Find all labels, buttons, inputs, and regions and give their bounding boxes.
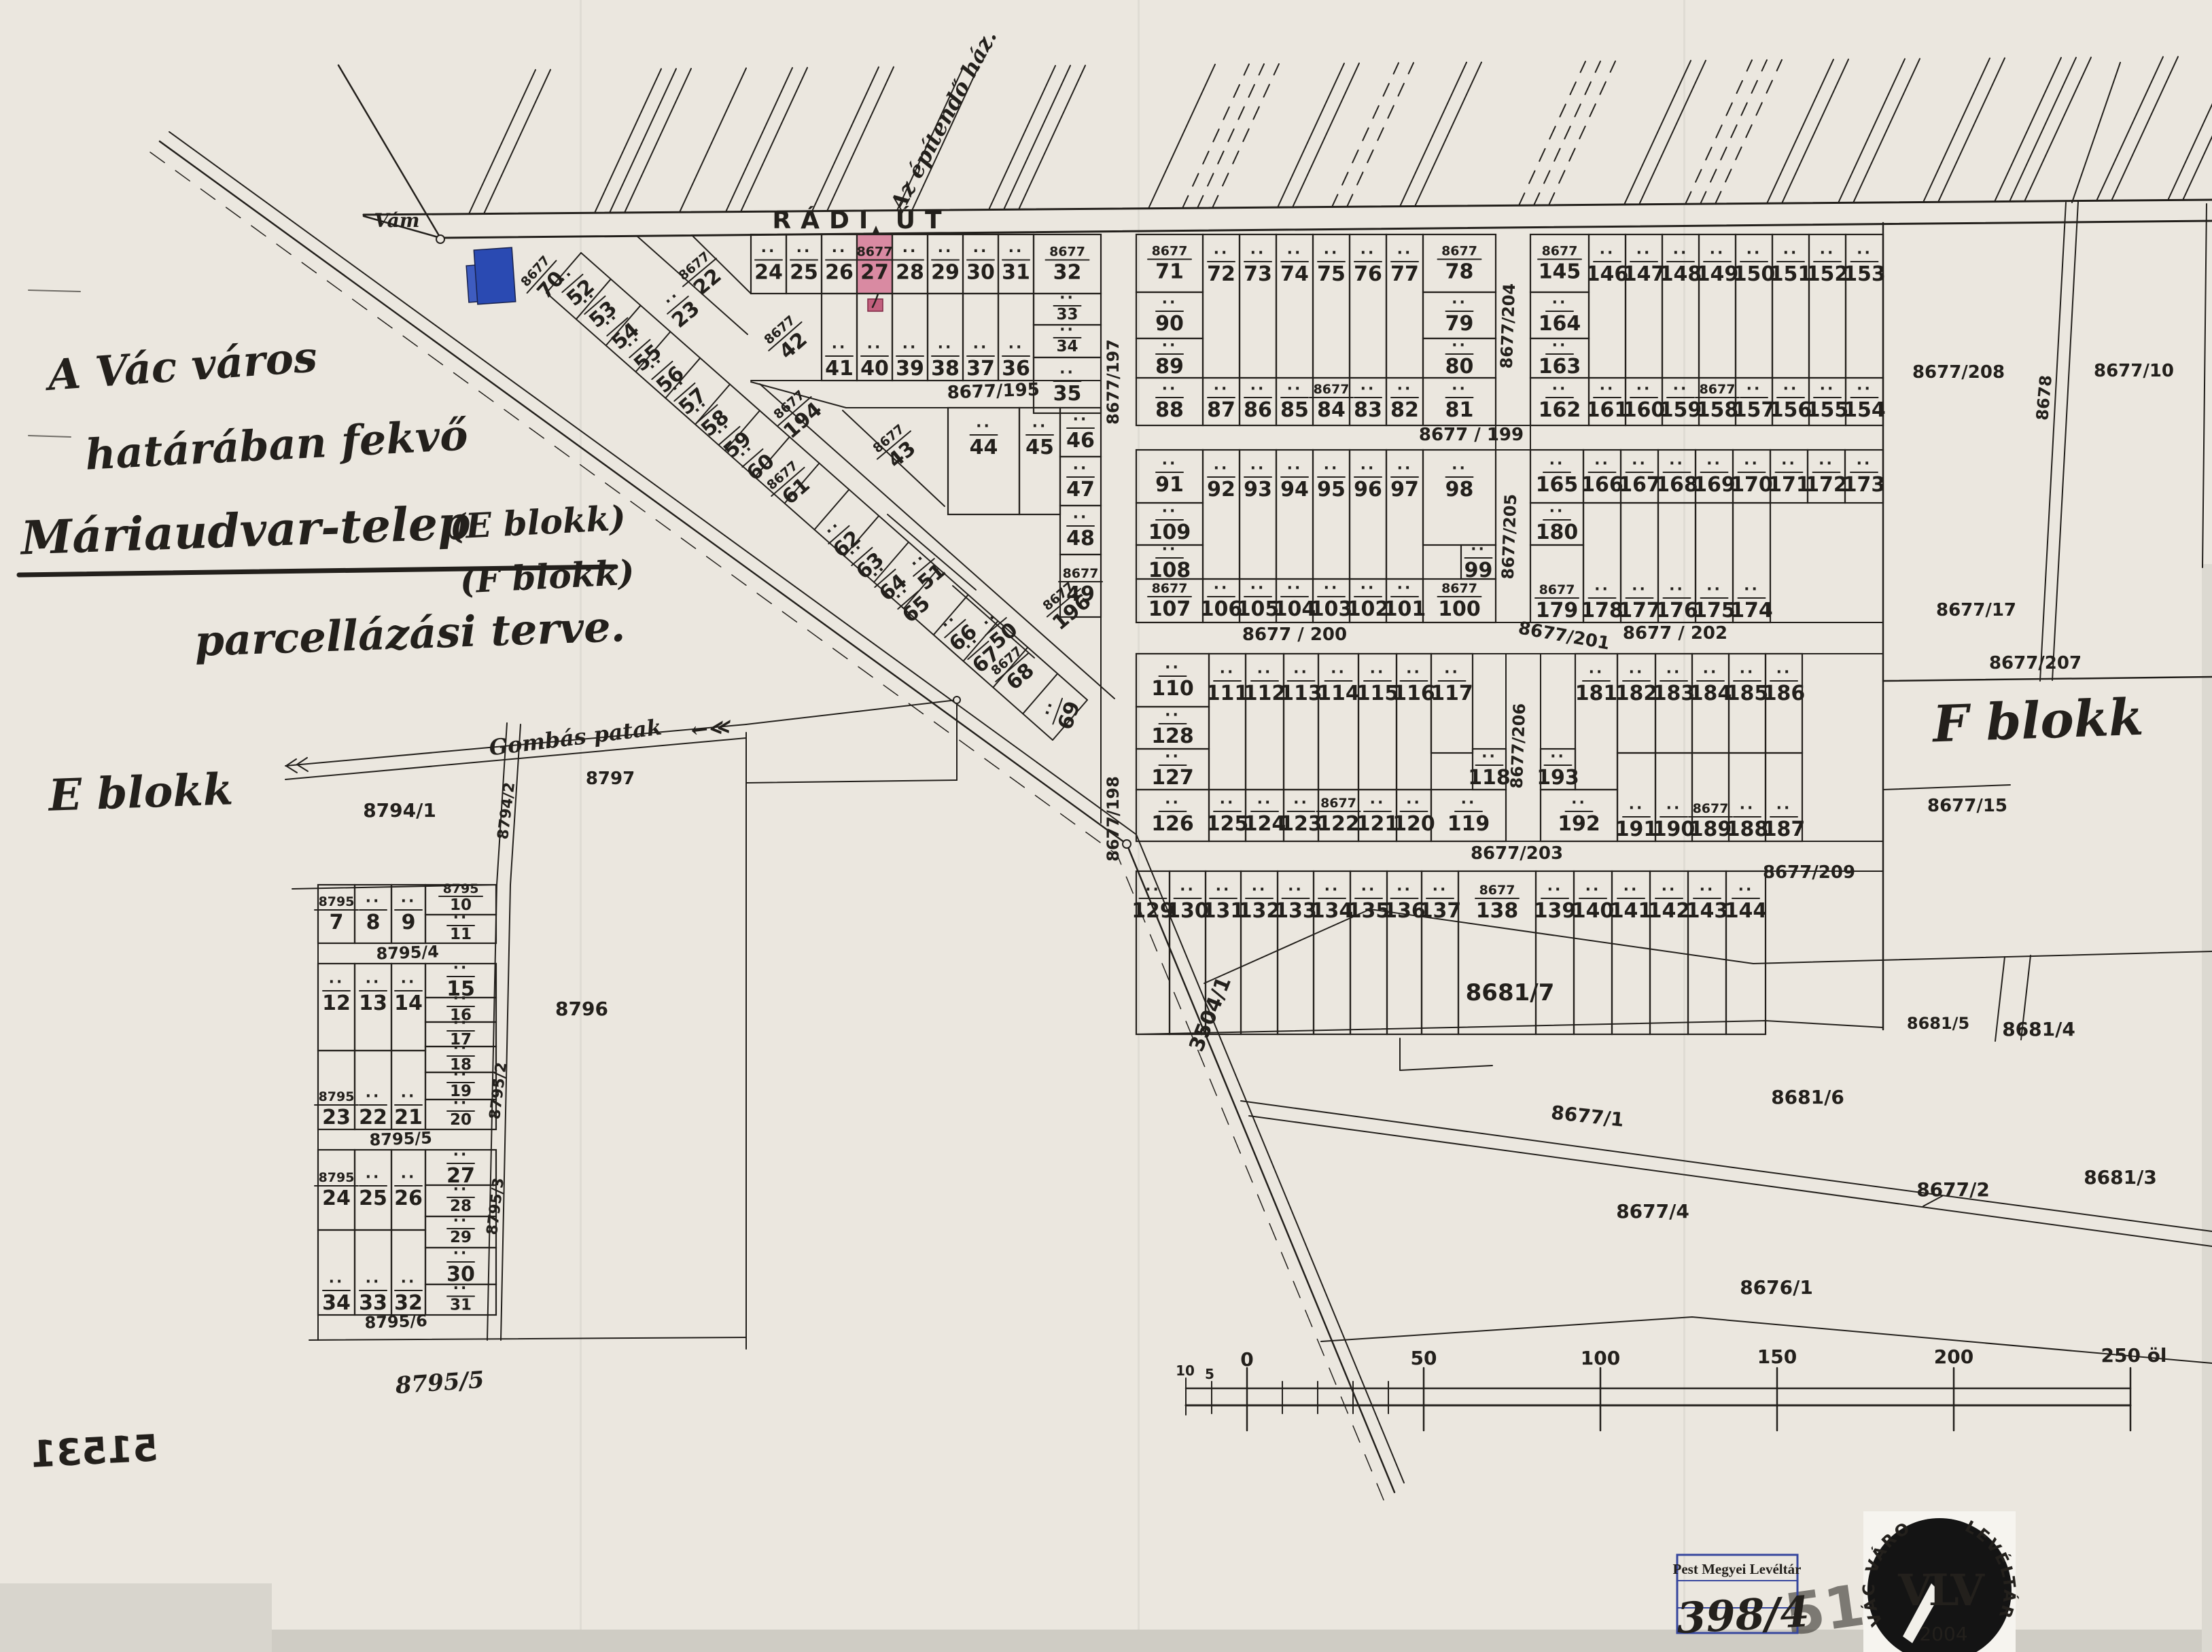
parcel-number: 174 — [1730, 599, 1773, 622]
parcel-prefix: ·· — [1740, 800, 1755, 817]
parcel-8677-2: 8677/2 — [1916, 1178, 1990, 1201]
parcel-prefix: ·· — [1360, 381, 1376, 398]
parcel-number: 164 — [1539, 312, 1581, 336]
parcel-number: 144 — [1725, 899, 1768, 923]
parcel-number: 187 — [1763, 818, 1806, 841]
parcel-prefix: ·· — [1632, 581, 1647, 598]
parcel-number: 193 — [1537, 766, 1579, 790]
parcel-prefix: ·· — [1746, 245, 1762, 262]
parcel-number: 72 — [1207, 262, 1235, 286]
parcel-prefix: ·· — [1452, 337, 1467, 354]
parcel-number: 86 — [1244, 398, 1272, 422]
parcel-number: 162 — [1539, 398, 1581, 422]
parcel-prefix: ·· — [1293, 794, 1309, 811]
logo-year: 2004 — [1919, 1623, 1967, 1645]
parcel-prefix: ·· — [1032, 418, 1048, 435]
parcel-number: 81 — [1445, 398, 1474, 422]
parcel-number: 37 — [966, 357, 995, 381]
parcel-number: 145 — [1539, 260, 1581, 284]
parcel-8677-4: 8677/4 — [1616, 1200, 1689, 1223]
parcel-prefix: ·· — [1397, 245, 1413, 262]
parcel-prefix: ·· — [1406, 664, 1422, 681]
parcel-prefix: ·· — [1257, 664, 1273, 681]
parcel-number: 36 — [1002, 357, 1030, 381]
scale-tick-5: 5 — [1205, 1366, 1214, 1382]
parcel-8681-6: 8681/6 — [1771, 1086, 1844, 1108]
parcel-prefix: ·· — [401, 1273, 417, 1290]
parcel-prefix: ·· — [1820, 245, 1836, 262]
parcel-prefix: ·· — [366, 1169, 381, 1186]
scale-tick-10: 10 — [1176, 1363, 1195, 1379]
parcel-prefix: ·· — [1220, 664, 1235, 681]
parcel-prefix: ·· — [1550, 748, 1566, 765]
parcel-prefix: ·· — [1669, 581, 1685, 598]
parcel-number: 26 — [394, 1187, 423, 1210]
parcel-number: 30 — [966, 261, 995, 285]
parcel-number: 79 — [1445, 312, 1474, 336]
parcel-prefix: ·· — [867, 339, 883, 356]
parcel-prefix: ·· — [1585, 881, 1601, 898]
parcel-prefix: ·· — [1744, 455, 1759, 472]
parcel-number: 90 — [1155, 312, 1184, 336]
parcel-prefix: ·· — [453, 1146, 469, 1163]
parcel-prefix: ·· — [1073, 411, 1089, 428]
parcel-number: 34 — [322, 1291, 351, 1315]
parcel-prefix: ·· — [1740, 664, 1755, 681]
parcel-number: 84 — [1317, 398, 1346, 422]
parcel-number: 45 — [1025, 436, 1054, 459]
parcel-number: 75 — [1317, 262, 1346, 286]
road-8795-5: 8795/5 — [369, 1128, 432, 1149]
parcel-number: 27 — [860, 261, 889, 285]
parcel-prefix: ·· — [1250, 580, 1266, 597]
parcel-prefix: ·· — [1214, 580, 1229, 597]
parcel-prefix: ·· — [1145, 881, 1161, 898]
parcel-prefix: ·· — [1857, 245, 1872, 262]
parcel-prefix: ·· — [1669, 455, 1685, 472]
parcel-prefix: ·· — [453, 960, 469, 977]
parcel-number: 177 — [1618, 599, 1661, 622]
parcel-prefix: ·· — [1397, 381, 1413, 398]
road-8677-195: 8677/195 — [947, 380, 1040, 404]
parcel-number: 8 — [366, 911, 381, 934]
parcel-prefix: ·· — [1162, 503, 1178, 520]
parcel-label-138: 8677138 — [1475, 883, 1519, 923]
parcel-prefix: 8677 — [1314, 382, 1350, 397]
parcel-number: 142 — [1648, 899, 1691, 923]
parcel-prefix: ·· — [1059, 364, 1075, 381]
parcel-prefix: ·· — [902, 243, 918, 260]
parcel-number: 87 — [1207, 398, 1235, 422]
road-8795-6: 8795/6 — [364, 1311, 427, 1332]
parcel-number: 126 — [1151, 812, 1194, 836]
parcel-prefix: ·· — [1623, 881, 1639, 898]
parcel-prefix: ·· — [1547, 881, 1563, 898]
parcel-number: 83 — [1354, 398, 1382, 422]
parcel-prefix: ·· — [1214, 245, 1229, 262]
road-8677-205: 8677/205 — [1498, 493, 1520, 580]
parcel-prefix: ·· — [1162, 337, 1178, 354]
parcel-number: 96 — [1354, 478, 1382, 502]
parcel-prefix: ·· — [1673, 381, 1689, 398]
parcel-prefix: ·· — [1073, 509, 1089, 526]
parcel-prefix: ·· — [453, 1181, 469, 1198]
parcel-prefix: ·· — [366, 1088, 381, 1105]
road-8677-202: 8677 / 202 — [1623, 623, 1727, 644]
parcel-number: 154 — [1843, 398, 1886, 422]
parcel-number: 167 — [1618, 473, 1661, 497]
parcel-number: 192 — [1558, 812, 1600, 836]
parcel-prefix: ·· — [1370, 794, 1386, 811]
parcel-prefix: ·· — [1552, 294, 1568, 311]
parcel-prefix: ·· — [401, 893, 417, 910]
parcel-prefix: ·· — [1600, 245, 1615, 262]
parcel-number: 34 — [1056, 338, 1078, 355]
parcel-prefix: ·· — [1738, 881, 1754, 898]
parcel-prefix: ·· — [1397, 881, 1412, 898]
parcel-prefix: ·· — [1324, 580, 1339, 597]
parcel-number: 11 — [450, 926, 472, 943]
parcel-prefix: 8677 — [1542, 244, 1578, 259]
parcel-prefix: ·· — [1324, 460, 1339, 477]
scale-tick-50: 50 — [1411, 1347, 1437, 1369]
parcel-prefix: ·· — [1008, 339, 1024, 356]
parcel-prefix: 8677 — [1539, 582, 1575, 597]
parcel-prefix: ·· — [453, 1280, 469, 1297]
inventory-number-mirrored: 51531 — [30, 1426, 160, 1476]
parcel-prefix: ·· — [1552, 381, 1568, 398]
parcel-prefix: ·· — [1706, 455, 1722, 472]
parcel-number: 94 — [1280, 478, 1309, 502]
parcel-prefix: ·· — [1452, 294, 1467, 311]
parcel-prefix: ·· — [1406, 794, 1422, 811]
parcel-prefix: ·· — [1073, 460, 1089, 477]
parcel-number: 28 — [896, 261, 924, 285]
cadastral-map-scan: ··24··25··26867727··28··29··30··31867732… — [0, 0, 2212, 1652]
parcel-prefix: ·· — [1571, 794, 1587, 811]
parcel-prefix: ·· — [1220, 794, 1235, 811]
parcel-prefix: 8795 — [319, 1089, 355, 1104]
parcel-number: 107 — [1148, 597, 1191, 621]
parcel-prefix: ·· — [1059, 289, 1075, 306]
parcel-number: 44 — [970, 436, 998, 459]
parcel-number: 31 — [1002, 261, 1030, 285]
parcel-prefix: ·· — [366, 893, 381, 910]
parcel-number: 71 — [1155, 260, 1184, 284]
parcel-label-179: 8677179 — [1535, 582, 1579, 622]
parcel-prefix: ·· — [938, 339, 953, 356]
parcel-number: 35 — [1053, 382, 1082, 406]
parcel-number: 125 — [1206, 812, 1249, 836]
parcel-number: 171 — [1768, 473, 1810, 497]
parcel-prefix: 8677 — [1441, 581, 1477, 596]
parcel-number: 89 — [1155, 355, 1184, 379]
parcel-prefix: ·· — [1165, 748, 1180, 765]
f-block-label: F blokk — [1931, 688, 2145, 754]
parcel-number: 24 — [322, 1187, 351, 1210]
parcel-prefix: ·· — [761, 243, 777, 260]
parcel-prefix: ·· — [1666, 800, 1682, 817]
parcel-number: 168 — [1655, 473, 1698, 497]
parcel-number: 110 — [1151, 677, 1194, 701]
parcel-number: 163 — [1539, 355, 1581, 379]
parcel-number: 25 — [359, 1187, 387, 1210]
parcel-number: 138 — [1476, 899, 1519, 923]
parcel-number: 24 — [754, 261, 783, 285]
road-8678: 8678 — [2033, 374, 2056, 421]
parcel-prefix: ·· — [1857, 455, 1872, 472]
parcel-number: 116 — [1392, 682, 1435, 705]
parcel-prefix: ·· — [1552, 337, 1568, 354]
parcel-prefix: ·· — [1370, 664, 1386, 681]
parcel-prefix: ·· — [1162, 455, 1178, 472]
parcel-prefix: ·· — [1594, 581, 1610, 598]
parcel-prefix: ·· — [1180, 881, 1195, 898]
parcel-number: 140 — [1572, 899, 1615, 923]
parcel-prefix: ·· — [1549, 503, 1565, 520]
parcel-number: 143 — [1686, 899, 1729, 923]
parcel-prefix: 8677 — [1700, 382, 1736, 397]
fold-crease — [580, 0, 582, 1652]
parcel-number: 29 — [931, 261, 960, 285]
parcel-prefix: ·· — [1783, 245, 1799, 262]
parcel-prefix: ·· — [1776, 664, 1792, 681]
parcel-prefix: 8677 — [1479, 883, 1515, 898]
parcel-prefix: ·· — [1636, 381, 1652, 398]
parcel-number: 92 — [1207, 478, 1235, 502]
parcel-8796: 8796 — [555, 998, 608, 1020]
parcel-prefix: ·· — [796, 243, 812, 260]
parcel-number: 137 — [1419, 899, 1462, 923]
parcel-number: 123 — [1280, 812, 1322, 836]
parcel-number: 93 — [1244, 478, 1272, 502]
parcel-prefix: 8677 — [1441, 244, 1477, 259]
parcel-prefix: ·· — [1636, 245, 1652, 262]
parcel-prefix: ·· — [1324, 245, 1339, 262]
parcel-number: 47 — [1066, 478, 1095, 502]
parcel-prefix: ·· — [1059, 321, 1075, 338]
parcel-prefix: ·· — [902, 339, 918, 356]
parcel-prefix: ·· — [453, 1015, 469, 1032]
parcel-prefix: ·· — [832, 243, 847, 260]
stamp-number: 398/4 — [1675, 1587, 1810, 1643]
road-8677-200: 8677 / 200 — [1242, 625, 1347, 645]
road-8677-207: 8677/207 — [1989, 653, 2082, 673]
parcel-prefix: ·· — [973, 243, 989, 260]
parcel-prefix: ·· — [1397, 460, 1413, 477]
parcel-number: 33 — [359, 1291, 387, 1315]
parcel-number: 191 — [1615, 818, 1658, 841]
parcel-prefix: ·· — [329, 1273, 345, 1290]
parcel-label-122: 8677122 — [1317, 796, 1360, 836]
survey-node — [953, 697, 960, 703]
scan-edge-right — [2202, 564, 2212, 1652]
parcel-8681-5: 8681/5 — [1907, 1014, 1969, 1033]
parcel-number: 181 — [1575, 682, 1618, 705]
parcel-number: 165 — [1536, 473, 1579, 497]
parcel-prefix: ·· — [1214, 460, 1229, 477]
parcel-number: 14 — [394, 991, 423, 1015]
parcel-prefix: ·· — [1361, 881, 1377, 898]
parcel-prefix: ·· — [1293, 664, 1309, 681]
parcel-prefix: ·· — [1252, 881, 1267, 898]
parcel-number: 13 — [359, 991, 387, 1015]
parcel-prefix: ·· — [1781, 455, 1797, 472]
parcel-prefix: ·· — [1703, 664, 1719, 681]
parcel-number: 117 — [1430, 682, 1473, 705]
fold-crease — [1138, 0, 1140, 1652]
parcel-number: 176 — [1655, 599, 1698, 622]
parcel-prefix: 8677 — [1693, 801, 1729, 816]
parcel-prefix: ·· — [1287, 381, 1303, 398]
parcel-number: 173 — [1843, 473, 1886, 497]
parcel-number: 74 — [1280, 262, 1309, 286]
parcel-number: 186 — [1763, 682, 1806, 705]
parcel-prefix: ·· — [1783, 381, 1799, 398]
parcel-prefix: ·· — [401, 974, 417, 991]
parcel-prefix: 8677 — [857, 245, 893, 260]
parcel-number: 100 — [1438, 597, 1481, 621]
parcel-prefix: ·· — [1776, 800, 1792, 817]
scale-tick-200: 200 — [1934, 1346, 1973, 1368]
survey-node — [436, 235, 444, 243]
parcel-prefix: ·· — [1162, 381, 1178, 398]
parcel-number: 12 — [322, 991, 351, 1015]
parcel-prefix: ·· — [401, 1169, 417, 1186]
parcel-prefix: ·· — [1629, 664, 1645, 681]
parcel-prefix: 8677 — [1063, 566, 1099, 581]
parcel-number: 98 — [1445, 478, 1474, 502]
road-8795-4: 8795/4 — [376, 942, 439, 963]
parcel-number: 166 — [1581, 473, 1623, 497]
parcel-8797: 8797 — [586, 769, 635, 789]
parcel-prefix: ·· — [1250, 381, 1266, 398]
parcel-prefix: ·· — [1165, 659, 1180, 676]
parcel-prefix: ·· — [453, 1066, 469, 1083]
parcel-prefix: ·· — [453, 1245, 469, 1262]
parcel-number: 111 — [1206, 682, 1249, 705]
parcel-number: 76 — [1354, 262, 1382, 286]
parcel-8681-7: 8681/7 — [1466, 979, 1555, 1006]
parcel-prefix: ·· — [329, 974, 345, 991]
parcel-number: 182 — [1615, 682, 1658, 705]
survey-node — [1123, 840, 1131, 848]
road-8677-199: 8677 / 199 — [1419, 425, 1524, 445]
parcel-prefix: ·· — [1710, 245, 1725, 262]
scale-tick-100: 100 — [1581, 1347, 1620, 1369]
parcel-prefix: ·· — [1549, 455, 1565, 472]
parcel-number: 41 — [825, 357, 854, 381]
parcel-prefix: ·· — [1666, 664, 1682, 681]
parcel-8677-15: 8677/15 — [1927, 796, 2007, 816]
parcel-prefix: ·· — [1706, 581, 1722, 598]
parcel-number: 170 — [1730, 473, 1773, 497]
logo-monogram: VLV — [1897, 1565, 1985, 1616]
parcel-prefix: ·· — [1857, 381, 1872, 398]
parcel-number: 23 — [322, 1106, 351, 1129]
parcel-prefix: ·· — [1397, 580, 1413, 597]
parcel-8681-4: 8681/4 — [2002, 1018, 2075, 1040]
parcel-prefix: ·· — [1744, 581, 1759, 598]
parcel-prefix: ·· — [1287, 245, 1303, 262]
parcel-number: 9 — [402, 911, 416, 934]
parcel-number: 172 — [1805, 473, 1848, 497]
parcel-number: 141 — [1610, 899, 1653, 923]
road-8677-203: 8677/203 — [1471, 843, 1563, 864]
parcel-prefix: ·· — [1288, 881, 1303, 898]
parcel-prefix: ·· — [1471, 541, 1486, 558]
parcel-number: 118 — [1468, 766, 1511, 790]
parcel-prefix: ·· — [1452, 460, 1467, 477]
parcel-prefix: ·· — [1008, 243, 1024, 260]
parcel-prefix: ·· — [1481, 748, 1497, 765]
parcel-number: 153 — [1843, 262, 1886, 286]
stamp-text: Pest Megyei Levéltár — [1673, 1561, 1802, 1577]
parcel-prefix: ·· — [453, 990, 469, 1007]
parcel-number: 46 — [1066, 429, 1095, 453]
parcel-number: 114 — [1317, 682, 1360, 705]
parcel-number: 40 — [860, 357, 889, 381]
parcel-prefix: ·· — [1257, 794, 1273, 811]
parcel-8677-17: 8677/17 — [1936, 600, 2016, 620]
parcel-prefix: 8677 — [1152, 244, 1188, 259]
parcel-8677-10: 8677/10 — [2094, 361, 2174, 381]
parcel-prefix: ·· — [366, 1273, 381, 1290]
parcel-number: 155 — [1806, 398, 1849, 422]
parcel-number: 122 — [1317, 812, 1360, 836]
parcel-prefix: ·· — [1746, 381, 1762, 398]
parcel-number: 7 — [330, 911, 344, 934]
stream-flow-arrows: ←≪ — [690, 714, 733, 743]
parcel-prefix: ·· — [938, 243, 953, 260]
parcel-number: 152 — [1806, 262, 1849, 286]
parcel-number: 97 — [1390, 478, 1419, 502]
parcel-label-145: 8677145 — [1538, 244, 1581, 284]
parcel-prefix: ·· — [1461, 794, 1477, 811]
parcel-number: 26 — [825, 261, 854, 285]
archive-stamp: Pest Megyei Levéltár398/4 — [1673, 1555, 1811, 1643]
parcel-prefix: ·· — [1589, 664, 1604, 681]
parcel-prefix: ·· — [832, 339, 847, 356]
parcel-8677-208: 8677/208 — [1912, 362, 2005, 383]
parcel-number: 77 — [1390, 262, 1419, 286]
parcel-number: 39 — [896, 357, 924, 381]
parcel-prefix: 8795 — [319, 894, 355, 909]
parcel-prefix: ·· — [1250, 245, 1266, 262]
parcel-prefix: ·· — [973, 339, 989, 356]
parcel-prefix: ·· — [1594, 455, 1610, 472]
parcel-number: 85 — [1280, 398, 1309, 422]
parcel-prefix: ·· — [1444, 664, 1460, 681]
parcel-prefix: ·· — [1600, 381, 1615, 398]
road-8677-197: 8677/197 — [1104, 339, 1123, 425]
parcel-number: 119 — [1447, 812, 1490, 836]
parcel-number: 80 — [1445, 355, 1474, 379]
parcel-number: 169 — [1693, 473, 1736, 497]
parcel-number: 29 — [450, 1229, 472, 1246]
parcel-number: 175 — [1693, 599, 1736, 622]
parcel-number: 95 — [1317, 478, 1346, 502]
parcel-8681-3: 8681/3 — [2084, 1166, 2157, 1189]
parcel-label-107: 8677107 — [1148, 581, 1191, 621]
parcel-number: 73 — [1244, 262, 1272, 286]
parcel-8676-1: 8676/1 — [1740, 1276, 1813, 1299]
parcel-prefix: ·· — [1819, 455, 1834, 472]
parcel-prefix: ·· — [1324, 881, 1340, 898]
vam-label: Vám — [374, 209, 420, 232]
parcel-prefix: ·· — [976, 418, 991, 435]
parcel-number: 139 — [1534, 899, 1577, 923]
